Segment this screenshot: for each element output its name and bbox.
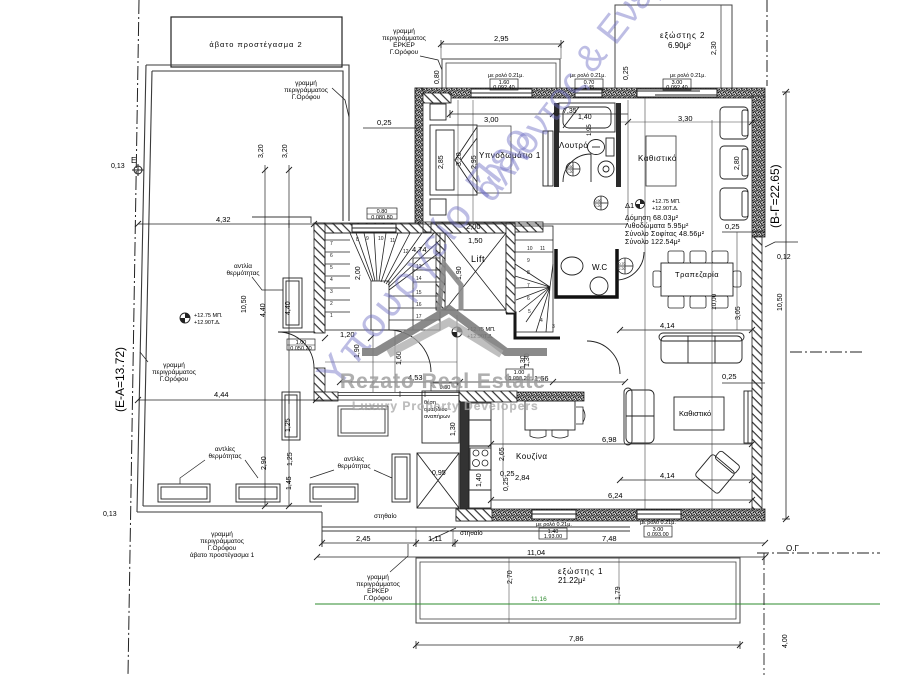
svg-text:3,30: 3,30 — [678, 114, 693, 123]
svg-text:1.93.00: 1.93.00 — [544, 534, 562, 540]
svg-text:3: 3 — [330, 289, 333, 295]
svg-text:2,65: 2,65 — [499, 447, 506, 461]
svg-text:4,00: 4,00 — [782, 634, 789, 648]
svg-text:11,16: 11,16 — [531, 596, 547, 603]
svg-text:3,20: 3,20 — [282, 144, 289, 158]
svg-text:ΕΡΚΕΡ: ΕΡΚΕΡ — [367, 588, 389, 595]
svg-text:4,40: 4,40 — [260, 303, 267, 317]
svg-text:με ρολό 0.21μ.: με ρολό 0.21μ. — [670, 72, 706, 79]
svg-text:0,25: 0,25 — [377, 118, 392, 127]
svg-text:4,14: 4,14 — [660, 321, 675, 330]
svg-text:2,84: 2,84 — [515, 473, 530, 482]
svg-text:περιγράμματος: περιγράμματος — [382, 34, 426, 42]
svg-text:4,44: 4,44 — [214, 390, 229, 399]
svg-text:2,95: 2,95 — [494, 34, 509, 43]
svg-text:3,20: 3,20 — [258, 144, 265, 158]
svg-text:2: 2 — [330, 301, 333, 307]
svg-text:0,12: 0,12 — [777, 254, 791, 261]
svg-text:Γ.Ορόφου: Γ.Ορόφου — [208, 544, 237, 552]
svg-text:γραμμή: γραμμή — [367, 574, 389, 581]
svg-text:γραμμή: γραμμή — [163, 362, 185, 369]
svg-text:+12.75 ΜΠ.: +12.75 ΜΠ. — [194, 313, 223, 319]
svg-text:10: 10 — [527, 246, 533, 252]
svg-text:0,95: 0,95 — [432, 470, 446, 477]
svg-text:2.20: 2.20 — [619, 267, 626, 271]
svg-text:5: 5 — [330, 265, 333, 271]
svg-text:Κουζίνα: Κουζίνα — [516, 452, 548, 461]
svg-text:με ρολό 0.21μ.: με ρολό 0.21μ. — [488, 72, 524, 79]
svg-text:ΕΡΚΕΡ: ΕΡΚΕΡ — [393, 42, 415, 49]
svg-text:7,86: 7,86 — [569, 634, 584, 643]
svg-text:περιγράμματος: περιγράμματος — [200, 537, 244, 545]
svg-text:+12.75 ΜΠ.: +12.75 ΜΠ. — [652, 199, 681, 205]
svg-text:16: 16 — [416, 302, 422, 308]
svg-text:2,00: 2,00 — [355, 266, 362, 280]
svg-text:περιγράμματος: περιγράμματος — [356, 580, 400, 588]
svg-text:1,30: 1,30 — [520, 355, 527, 369]
svg-text:περιγράμματος: περιγράμματος — [284, 86, 328, 94]
svg-text:6,98: 6,98 — [602, 435, 617, 444]
svg-text:+12.90Τ.Δ.: +12.90Τ.Δ. — [194, 320, 221, 326]
svg-text:0.092.40: 0.092.40 — [493, 85, 514, 91]
svg-text:Ο.Γ: Ο.Γ — [786, 544, 799, 553]
svg-text:εξώστης 1: εξώστης 1 — [558, 567, 603, 576]
svg-text:Γ.Ορόφου: Γ.Ορόφου — [292, 93, 321, 101]
svg-text:2,90: 2,90 — [261, 456, 268, 470]
svg-text:Καθιστικό: Καθιστικό — [638, 154, 677, 163]
svg-text:4: 4 — [540, 318, 543, 324]
svg-text:Λιθοδώματα 5.95μ²: Λιθοδώματα 5.95μ² — [625, 222, 689, 230]
svg-text:3,00: 3,00 — [484, 115, 499, 124]
svg-text:0.093.00: 0.093.00 — [647, 532, 668, 538]
svg-text:Δόμηση 68.03μ²: Δόμηση 68.03μ² — [625, 214, 679, 222]
svg-text:6,24: 6,24 — [608, 491, 623, 500]
svg-text:0,25: 0,25 — [623, 66, 630, 80]
svg-text:γραμμή: γραμμή — [211, 531, 233, 538]
svg-text:8: 8 — [527, 270, 530, 276]
svg-text:4,40: 4,40 — [285, 301, 292, 315]
svg-text:7: 7 — [330, 241, 333, 247]
svg-text:Ε: Ε — [131, 156, 136, 165]
svg-text:1,25: 1,25 — [287, 452, 294, 466]
svg-text:στηθαίο: στηθαίο — [374, 512, 397, 520]
svg-text:0.080.80: 0.080.80 — [371, 215, 392, 221]
svg-text:10,50: 10,50 — [241, 295, 248, 313]
svg-text:Γ.Ορόφου: Γ.Ορόφου — [390, 48, 419, 56]
svg-text:11: 11 — [540, 246, 545, 252]
svg-text:3: 3 — [552, 324, 555, 330]
svg-text:Δ1: Δ1 — [625, 201, 634, 210]
svg-text:2,30: 2,30 — [711, 41, 718, 55]
svg-text:4,14: 4,14 — [660, 471, 675, 480]
svg-text:3,05: 3,05 — [735, 306, 742, 320]
svg-text:Lift: Lift — [471, 254, 485, 264]
svg-text:1,45: 1,45 — [286, 476, 293, 490]
svg-text:αντλίες: αντλίες — [344, 455, 364, 463]
svg-text:0.092.40: 0.092.40 — [666, 85, 687, 91]
svg-text:0.70: 0.70 — [619, 262, 626, 266]
svg-text:17: 17 — [416, 314, 422, 320]
svg-text:θερμότητας: θερμότητας — [337, 462, 370, 470]
svg-text:11: 11 — [390, 238, 395, 244]
svg-text:+12.90Τ.Δ.: +12.90Τ.Δ. — [652, 206, 679, 212]
svg-text:2,80: 2,80 — [734, 156, 741, 170]
svg-text:0,13: 0,13 — [111, 163, 125, 170]
svg-text:1: 1 — [330, 313, 333, 319]
svg-text:γραμμή: γραμμή — [393, 28, 415, 35]
svg-text:άβατο προστέγασμα 1: άβατο προστέγασμα 1 — [190, 551, 255, 559]
svg-text:1,50: 1,50 — [468, 236, 483, 245]
svg-text:με ρολό 0.21μ.: με ρολό 0.21μ. — [640, 519, 676, 526]
svg-text:6: 6 — [330, 253, 333, 259]
svg-text:6.90μ²: 6.90μ² — [668, 41, 691, 50]
svg-text:7: 7 — [527, 283, 530, 289]
svg-text:0,25: 0,25 — [722, 372, 737, 381]
svg-text:1,79: 1,79 — [615, 586, 622, 600]
svg-text:0,25: 0,25 — [500, 469, 515, 478]
svg-text:θερμότητας: θερμότητας — [208, 452, 241, 460]
svg-text:Σύνολο Σοφίτας 48.56μ²: Σύνολο Σοφίτας 48.56μ² — [625, 230, 705, 238]
svg-text:αναπήρων: αναπήρων — [424, 413, 450, 420]
svg-text:1,95: 1,95 — [587, 124, 593, 136]
svg-text:Καθιστικό: Καθιστικό — [679, 409, 711, 418]
svg-text:10: 10 — [378, 236, 384, 242]
svg-text:21.22μ²: 21.22μ² — [558, 576, 586, 585]
svg-text:6: 6 — [527, 296, 530, 302]
svg-text:θερμότητας: θερμότητας — [226, 269, 259, 277]
svg-text:Τραπεζαρία: Τραπεζαρία — [675, 270, 719, 279]
svg-text:0,25: 0,25 — [725, 222, 740, 231]
svg-text:1,11: 1,11 — [428, 534, 442, 543]
svg-text:2,45: 2,45 — [356, 534, 371, 543]
svg-text:άβατο προστέγασμα 2: άβατο προστέγασμα 2 — [209, 40, 302, 49]
svg-text:1,40: 1,40 — [578, 114, 592, 121]
svg-text:9: 9 — [527, 258, 530, 264]
svg-text:4: 4 — [330, 277, 333, 283]
svg-text:2.20: 2.20 — [595, 204, 602, 208]
svg-text:Σύνολο 122.54μ²: Σύνολο 122.54μ² — [625, 238, 681, 246]
svg-text:5: 5 — [528, 309, 531, 315]
svg-text:Rezato Real Estate: Rezato Real Estate — [340, 370, 546, 393]
svg-text:Λουτρό: Λουτρό — [559, 141, 588, 150]
svg-text:Γ.Ορόφου: Γ.Ορόφου — [160, 375, 189, 383]
svg-text:1,25: 1,25 — [285, 418, 292, 432]
svg-text:2.20: 2.20 — [567, 170, 574, 174]
svg-text:γραμμή: γραμμή — [295, 80, 317, 87]
svg-text:(Β-Γ=22.65): (Β-Γ=22.65) — [768, 164, 782, 228]
svg-text:2,70: 2,70 — [507, 570, 514, 584]
svg-text:0,80: 0,80 — [434, 70, 441, 84]
svg-text:3,20: 3,20 — [456, 152, 463, 166]
svg-text:7,48: 7,48 — [602, 534, 617, 543]
svg-text:αντλίες: αντλίες — [215, 445, 235, 453]
svg-text:1,40: 1,40 — [476, 473, 483, 487]
svg-text:περιγράμματος: περιγράμματος — [152, 368, 196, 376]
svg-text:2,85: 2,85 — [438, 155, 445, 169]
svg-text:Luxury Property Developers: Luxury Property Developers — [352, 399, 539, 413]
svg-text:(Ε-Α=13.72): (Ε-Α=13.72) — [113, 347, 127, 412]
svg-text:0,25: 0,25 — [503, 477, 510, 491]
svg-text:4,32: 4,32 — [216, 215, 231, 224]
svg-text:αντλία: αντλία — [234, 262, 252, 270]
svg-text:1,30: 1,30 — [450, 422, 457, 436]
svg-text:0.90: 0.90 — [595, 199, 602, 203]
svg-text:0,13: 0,13 — [103, 511, 117, 518]
svg-text:στηθαίο: στηθαίο — [460, 529, 483, 537]
svg-text:0.050.20: 0.050.20 — [290, 346, 311, 352]
svg-text:εξώστης 2: εξώστης 2 — [660, 31, 705, 40]
svg-text:Γ.Ορόφου: Γ.Ορόφου — [364, 594, 393, 602]
svg-text:8: 8 — [356, 237, 359, 243]
svg-text:11,04: 11,04 — [527, 548, 545, 557]
svg-text:10,50: 10,50 — [777, 293, 784, 311]
svg-text:W.C: W.C — [592, 263, 607, 272]
svg-text:9: 9 — [366, 236, 369, 242]
